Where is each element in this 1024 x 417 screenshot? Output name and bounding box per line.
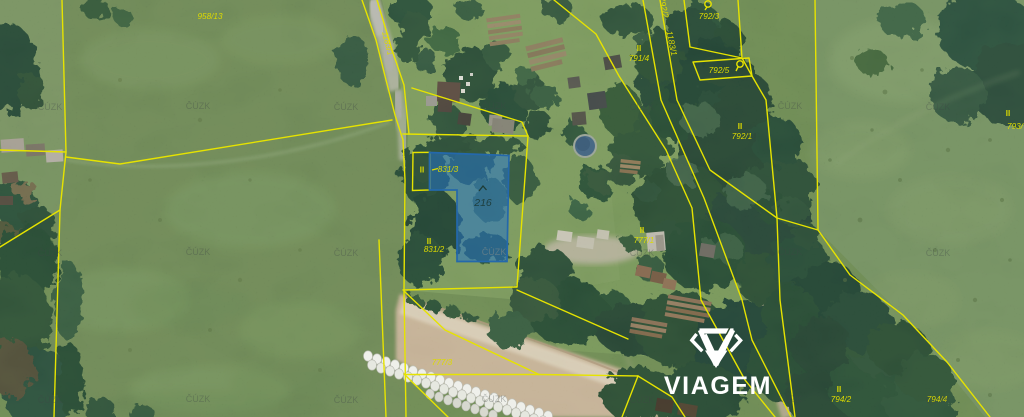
svg-text:ČÚZK: ČÚZK [482,247,507,257]
svg-text:ČÚZK: ČÚZK [778,101,803,111]
svg-text:ČÚZK: ČÚZK [630,248,655,258]
svg-text:216: 216 [473,197,492,209]
svg-text:ČÚZK: ČÚZK [778,394,803,404]
svg-text:792/5: 792/5 [709,66,730,75]
svg-text:ČÚZK: ČÚZK [482,101,507,111]
svg-text:ČÚZK: ČÚZK [38,248,63,258]
svg-text:ČÚZK: ČÚZK [38,102,63,112]
svg-text:ČÚZK: ČÚZK [186,101,211,111]
svg-text:794/2: 794/2 [831,395,852,404]
svg-text:ČÚZK: ČÚZK [334,248,359,258]
svg-text:II: II [837,385,841,394]
svg-text:791/4: 791/4 [629,54,650,63]
svg-text:II: II [637,44,641,53]
svg-text:ČÚZK: ČÚZK [926,395,951,405]
svg-text:II: II [738,122,742,131]
svg-text:777/1: 777/1 [634,236,655,245]
svg-text:ČÚZK: ČÚZK [630,395,655,405]
svg-text:831/3: 831/3 [438,165,459,174]
svg-text:II: II [427,237,431,246]
svg-text:VIAGEM: VIAGEM [664,372,772,400]
svg-text:793/: 793/ [1007,122,1024,131]
svg-text:ČÚZK: ČÚZK [186,247,211,257]
svg-text:ČÚZK: ČÚZK [630,102,655,112]
svg-text:II: II [1006,109,1010,118]
svg-text:958/13: 958/13 [197,12,222,21]
svg-text:831/2: 831/2 [424,245,445,254]
svg-text:792/1: 792/1 [732,132,753,141]
svg-text:777/3: 777/3 [432,358,453,367]
svg-text:ČÚZK: ČÚZK [482,394,507,404]
svg-text:II: II [640,226,644,235]
svg-text:ČÚZK: ČÚZK [926,102,951,112]
svg-text:ČÚZK: ČÚZK [186,394,211,404]
svg-text:ČÚZK: ČÚZK [334,102,359,112]
svg-text:II: II [420,166,424,175]
svg-text:ČÚZK: ČÚZK [926,248,951,258]
svg-text:ČÚZK: ČÚZK [778,247,803,257]
svg-text:ČÚZK: ČÚZK [334,395,359,405]
svg-text:792/3: 792/3 [699,12,720,21]
svg-text:ČÚZK: ČÚZK [38,395,63,405]
